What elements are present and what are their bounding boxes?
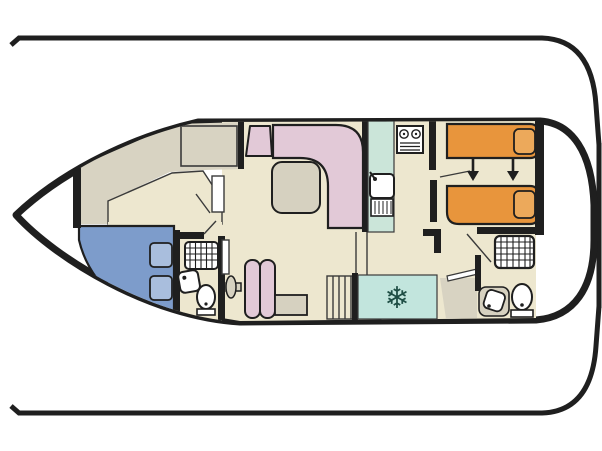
aft-cabin-wall-right (535, 119, 544, 235)
fwd-bath-wall-top (174, 232, 204, 239)
saloon-table (272, 162, 320, 213)
wardrobe (181, 126, 237, 166)
aft-vestibule (440, 278, 477, 319)
galley-wall (362, 119, 368, 232)
side-table (275, 295, 307, 315)
aft-wall-mid (430, 180, 437, 222)
fwd-sink (177, 269, 200, 293)
floor-plan: ❄ (0, 0, 602, 451)
floor-plan-canvas: ❄ (0, 0, 602, 451)
twin-bed-1-pillow (514, 129, 535, 154)
aft-wall-corner-v (434, 233, 441, 253)
fwd-toilet (197, 285, 215, 315)
galley-sink (370, 172, 394, 216)
double-bed-pillow-2 (150, 276, 172, 300)
snowflake-icon: ❄ (384, 281, 409, 316)
double-bed (79, 226, 174, 318)
fwd-shower (185, 242, 218, 269)
double-bed-pillow-1 (150, 243, 172, 267)
aft-toilet (511, 284, 533, 317)
chair-cushion-1 (245, 260, 260, 318)
stove (397, 126, 423, 153)
twin-bed-2-pillow (514, 191, 535, 218)
companionway-steps (327, 276, 354, 319)
corner-seat (246, 126, 272, 156)
saloon-door-leaf (222, 240, 229, 274)
fwd-cabin-door-leaf (212, 176, 224, 212)
aft-sink (479, 287, 509, 316)
aft-shower (495, 236, 534, 268)
saloon-wall-left (238, 119, 244, 169)
aft-bath-wall-top (477, 227, 544, 234)
aft-wall-upper (429, 120, 436, 170)
aft-bath-wall-left (475, 255, 481, 291)
chair-cushion-2 (260, 260, 275, 318)
fridge-wall (352, 273, 358, 320)
